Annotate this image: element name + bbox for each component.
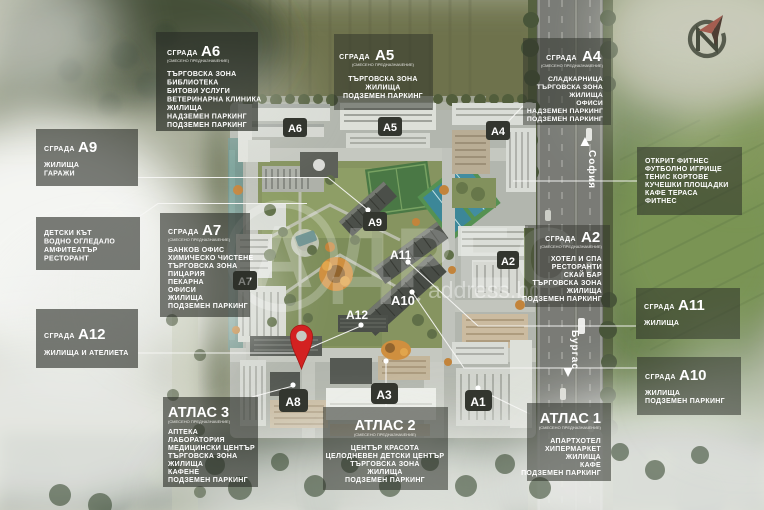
svg-text:ЖИЛИЩА: ЖИЛИЩА	[568, 92, 603, 99]
svg-text:ЖИЛИЩА: ЖИЛИЩА	[166, 105, 202, 112]
svg-text:ПОДЗЕМЕН ПАРКИНГ: ПОДЗЕМЕН ПАРКИНГ	[343, 93, 423, 100]
svg-text:ТЪРГОВСКА ЗОНА: ТЪРГОВСКА ЗОНА	[537, 84, 603, 91]
svg-text:БАНКОВ ОФИС: БАНКОВ ОФИС	[168, 247, 224, 254]
svg-text:(СМЕСЕНО ПРЕДНАЗНАЧЕНИЕ): (СМЕСЕНО ПРЕДНАЗНАЧЕНИЕ)	[540, 244, 603, 249]
svg-text:А12: А12	[78, 326, 106, 343]
svg-text:ТЪРГОВСКА ЗОНА: ТЪРГОВСКА ЗОНА	[532, 280, 602, 287]
svg-text:КАФЕНЕ: КАФЕНЕ	[168, 469, 199, 476]
svg-text:СГРАДА: СГРАДА	[546, 55, 577, 62]
svg-text:ХОТЕЛ И СПА: ХОТЕЛ И СПА	[551, 256, 602, 263]
svg-text:Бургас: Бургас	[569, 330, 580, 370]
svg-text:ЖИЛИЩА: ЖИЛИЩА	[644, 390, 680, 397]
svg-text:ПИЦАРИЯ: ПИЦАРИЯ	[168, 271, 205, 278]
svg-text:ОФИСИ: ОФИСИ	[576, 100, 603, 107]
svg-text:КУЧЕШКИ ПЛОЩАДКИ: КУЧЕШКИ ПЛОЩАДКИ	[645, 182, 729, 189]
svg-text:А3: А3	[376, 388, 392, 402]
svg-text:ЛАБОРАТОРИЯ: ЛАБОРАТОРИЯ	[168, 437, 225, 444]
svg-text:СГРАДА: СГРАДА	[44, 333, 75, 340]
svg-text:ВЕТЕРИНАРНА КЛИНИКА: ВЕТЕРИНАРНА КЛИНИКА	[167, 97, 262, 104]
svg-text:(СМЕСЕНО ПРЕДНАЗНАЧЕНИЕ): (СМЕСЕНО ПРЕДНАЗНАЧЕНИЕ)	[168, 419, 231, 424]
svg-text:АПТЕКА: АПТЕКА	[168, 429, 198, 436]
svg-text:ТЕНИС КОРТОВЕ: ТЕНИС КОРТОВЕ	[645, 174, 709, 181]
svg-text:ЖИЛИЩА: ЖИЛИЩА	[643, 320, 679, 327]
svg-text:РЕСТОРАНТИ: РЕСТОРАНТИ	[552, 264, 602, 271]
svg-text:(СМЕСЕНО ПРЕДНАЗНАЧЕНИЕ): (СМЕСЕНО ПРЕДНАЗНАЧЕНИЕ)	[168, 237, 231, 242]
svg-text:ПЕКАРНА: ПЕКАРНА	[168, 279, 204, 286]
svg-text:ЦЕНТЪР КРАСОТА: ЦЕНТЪР КРАСОТА	[351, 445, 419, 452]
svg-text:А6: А6	[288, 123, 302, 135]
svg-text:ЖИЛИЩА: ЖИЛИЩА	[43, 162, 79, 169]
svg-text:А2: А2	[501, 256, 515, 268]
svg-text:КАФЕ ТЕРАСА: КАФЕ ТЕРАСА	[645, 190, 698, 197]
svg-text:ВОДНО ОГЛЕДАЛО: ВОДНО ОГЛЕДАЛО	[44, 239, 115, 246]
svg-text:ПОДЗЕМЕН ПАРКИНГ: ПОДЗЕМЕН ПАРКИНГ	[645, 398, 725, 405]
svg-text:ЖИЛИЩА: ЖИЛИЩА	[364, 85, 400, 92]
svg-text:ОТКРИТ ФИТНЕС: ОТКРИТ ФИТНЕС	[645, 158, 709, 165]
svg-text:ТЪРГОВСКА ЗОНА: ТЪРГОВСКА ЗОНА	[348, 76, 418, 83]
svg-text:СКАЙ БАР: СКАЙ БАР	[564, 270, 602, 279]
svg-text:ПОДЗЕМЕН ПАРКИНГ: ПОДЗЕМЕН ПАРКИНГ	[168, 477, 248, 484]
svg-text:ТЪРГОВСКА ЗОНА: ТЪРГОВСКА ЗОНА	[168, 263, 238, 270]
svg-text:НАДЗЕМЕН ПАРКИНГ: НАДЗЕМЕН ПАРКИНГ	[167, 114, 247, 121]
svg-text:ПОДЗЕМЕН ПАРКИНГ: ПОДЗЕМЕН ПАРКИНГ	[167, 122, 247, 129]
svg-text:ЖИЛИЩА: ЖИЛИЩА	[167, 461, 203, 468]
svg-text:СГРАДА: СГРАДА	[339, 54, 370, 61]
svg-text:(СМЕСЕНО ПРЕДНАЗНАЧЕНИЕ): (СМЕСЕНО ПРЕДНАЗНАЧЕНИЕ)	[539, 425, 602, 430]
svg-text:СГРАДА: СГРАДА	[644, 304, 675, 311]
svg-text:ФУТБОЛНО ИГРИЩЕ: ФУТБОЛНО ИГРИЩЕ	[645, 166, 722, 173]
svg-text:А9: А9	[78, 139, 97, 156]
svg-text:АМФИТЕАТЪР: АМФИТЕАТЪР	[44, 247, 98, 254]
svg-text:СГРАДА: СГРАДА	[168, 229, 199, 236]
svg-text:ПОДЗЕМЕН ПАРКИНГ: ПОДЗЕМЕН ПАРКИНГ	[521, 470, 601, 477]
svg-text:А12: А12	[346, 308, 368, 322]
svg-text:НАДЗЕМЕН ПАРКИНГ: НАДЗЕМЕН ПАРКИНГ	[527, 108, 603, 115]
svg-text:А1: А1	[470, 395, 486, 409]
svg-text:СЛАДКАРНИЦА: СЛАДКАРНИЦА	[548, 76, 603, 83]
svg-text:А11: А11	[678, 297, 705, 314]
svg-text:А10: А10	[679, 367, 707, 384]
svg-text:ЖИЛИЩА: ЖИЛИЩА	[566, 288, 602, 295]
svg-text:ТЪРГОВСКА ЗОНА: ТЪРГОВСКА ЗОНА	[167, 71, 237, 78]
svg-text:А8: А8	[285, 395, 301, 409]
svg-text:(СМЕСЕНО ПРЕДНАЗНАЧЕНИЕ): (СМЕСЕНО ПРЕДНАЗНАЧЕНИЕ)	[167, 58, 230, 63]
svg-text:ТЪРГОВСКА ЗОНА: ТЪРГОВСКА ЗОНА	[168, 453, 238, 460]
svg-text:СГРАДА: СГРАДА	[44, 146, 75, 153]
svg-text:БИБЛИОТЕКА: БИБЛИОТЕКА	[167, 80, 219, 87]
svg-text:МЕДИЦИНСКИ ЦЕНТЪР: МЕДИЦИНСКИ ЦЕНТЪР	[168, 445, 255, 452]
svg-text:ТЪРГОВСКА ЗОНА: ТЪРГОВСКА ЗОНА	[350, 461, 420, 468]
svg-text:ДЕТСКИ КЪТ: ДЕТСКИ КЪТ	[44, 230, 92, 237]
svg-text:РЕСТОРАНТ: РЕСТОРАНТ	[44, 256, 89, 263]
svg-text:София: София	[586, 150, 598, 189]
svg-text:СГРАДА: СГРАДА	[645, 374, 676, 381]
svg-text:(СМЕСЕНО ПРЕДНАЗНАЧЕНИЕ): (СМЕСЕНО ПРЕДНАЗНАЧЕНИЕ)	[352, 62, 415, 67]
svg-text:ПОДЗЕМЕН ПАРКИНГ: ПОДЗЕМЕН ПАРКИНГ	[345, 477, 425, 484]
svg-text:ЖИЛИЩА: ЖИЛИЩА	[366, 469, 402, 476]
svg-text:А9: А9	[368, 217, 382, 229]
svg-text:ЖИЛИЩА: ЖИЛИЩА	[565, 454, 601, 461]
svg-text:ЖИЛИЩА И АТЕЛИЕТА: ЖИЛИЩА И АТЕЛИЕТА	[43, 350, 129, 357]
svg-text:А: А	[250, 207, 314, 306]
svg-text:КАФЕ: КАФЕ	[580, 462, 601, 469]
svg-text:ПОДЗЕМЕН ПАРКИНГ: ПОДЗЕМЕН ПАРКИНГ	[168, 303, 248, 310]
svg-text:А5: А5	[383, 122, 397, 134]
svg-text:БИТОВИ УСЛУГИ: БИТОВИ УСЛУГИ	[167, 88, 230, 95]
svg-text:ОФИСИ: ОФИСИ	[168, 287, 196, 294]
svg-text:ЖИЛИЩА: ЖИЛИЩА	[167, 295, 203, 302]
svg-text:СГРАДА: СГРАДА	[167, 50, 198, 57]
svg-text:А10: А10	[391, 293, 415, 308]
svg-text:(СМЕСЕНО ПРЕДНАЗНАЧЕНИЕ): (СМЕСЕНО ПРЕДНАЗНАЧЕНИЕ)	[354, 432, 417, 437]
svg-text:ХИПЕРМАРКЕТ: ХИПЕРМАРКЕТ	[545, 446, 601, 453]
svg-text:А11: А11	[390, 248, 412, 262]
svg-text:ЦЕЛОДНЕВЕН ДЕТСКИ ЦЕНТЪР: ЦЕЛОДНЕВЕН ДЕТСКИ ЦЕНТЪР	[326, 453, 445, 460]
svg-text:СГРАДА: СГРАДА	[545, 236, 576, 243]
svg-text:ФИТНЕС: ФИТНЕС	[645, 198, 677, 205]
svg-text:ГАРАЖИ: ГАРАЖИ	[44, 171, 75, 178]
svg-text:АПАРТХОТЕЛ: АПАРТХОТЕЛ	[550, 438, 601, 445]
svg-text:(СМЕСЕНО ПРЕДНАЗНАЧЕНИЕ): (СМЕСЕНО ПРЕДНАЗНАЧЕНИЕ)	[541, 63, 604, 68]
svg-text:А4: А4	[491, 126, 506, 138]
svg-text:ПОДЗЕМЕН ПАРКИНГ: ПОДЗЕМЕН ПАРКИНГ	[522, 296, 602, 303]
svg-text:ХИМИЧЕСКО ЧИСТЕНЕ: ХИМИЧЕСКО ЧИСТЕНЕ	[168, 255, 253, 262]
svg-text:ПОДЗЕМЕН ПАРКИНГ: ПОДЗЕМЕН ПАРКИНГ	[527, 116, 603, 123]
